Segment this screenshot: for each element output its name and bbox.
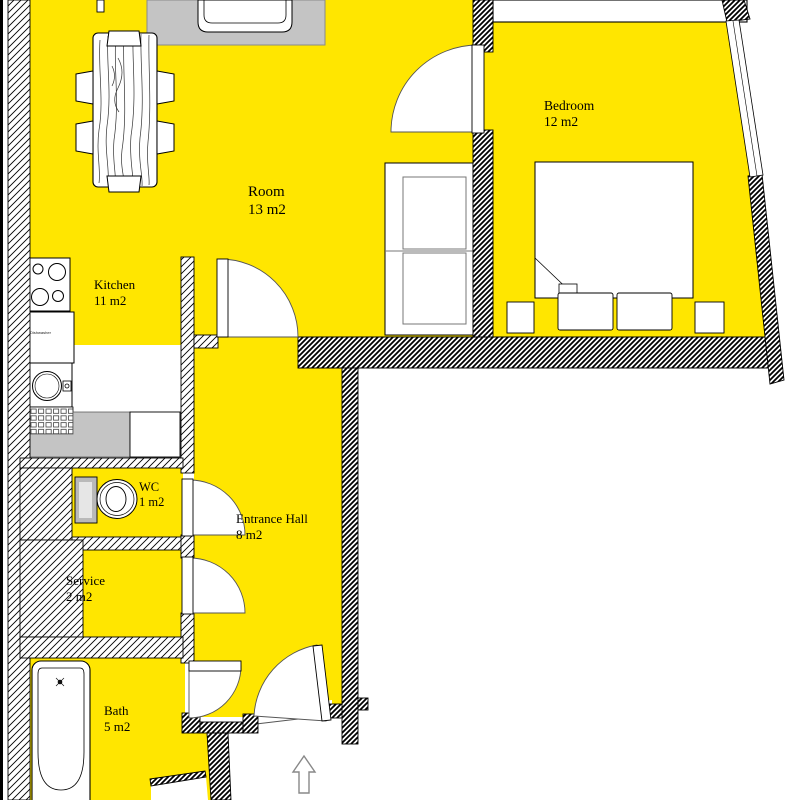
room-name: Bedroom xyxy=(544,98,594,114)
chair-icon xyxy=(107,31,141,46)
door-leaf xyxy=(189,661,241,671)
bathtub-icon xyxy=(32,661,90,800)
armchair-icon xyxy=(198,0,292,32)
cabinet xyxy=(130,412,180,457)
wall xyxy=(243,714,258,733)
wall xyxy=(298,337,782,368)
room-area: 12 m2 xyxy=(544,114,594,130)
bedroom-label: Bedroom 12 m2 xyxy=(544,98,594,131)
drainboard-icon xyxy=(28,407,73,434)
wall xyxy=(200,722,243,733)
entrance-hall-label: Entrance Hall 8 m2 xyxy=(236,511,308,543)
door-leaf xyxy=(217,259,228,337)
wall xyxy=(20,637,183,658)
room-area: 13 m2 xyxy=(248,201,286,219)
chair-icon xyxy=(157,121,174,154)
dishwasher-label: Dishwasher xyxy=(30,331,72,336)
wall xyxy=(473,130,493,337)
kitchen-label: Kitchen 11 m2 xyxy=(94,277,135,309)
room-area: 11 m2 xyxy=(94,293,135,309)
door-leaf xyxy=(472,45,484,133)
wall xyxy=(473,0,493,52)
wall xyxy=(342,368,358,744)
room-area: 5 m2 xyxy=(104,719,130,735)
floor-plan: Room 13 m2 Bedroom 12 m2 Kitchen 11 m2 W… xyxy=(0,0,800,800)
closet-icon xyxy=(493,0,747,22)
wall xyxy=(181,257,194,473)
pillow-icon xyxy=(617,293,672,330)
floor-plan-drawing xyxy=(0,0,800,800)
bath-label: Bath 5 m2 xyxy=(104,703,130,735)
room-area: 2 m2 xyxy=(66,589,105,605)
wall xyxy=(194,335,218,348)
dishwasher-icon xyxy=(28,312,74,363)
wall xyxy=(358,698,368,710)
wall xyxy=(20,458,183,468)
room-name: Kitchen xyxy=(94,277,135,293)
nightstand-icon xyxy=(695,302,724,333)
door-leaf xyxy=(182,479,193,536)
wall xyxy=(0,0,3,800)
nightstand-icon xyxy=(507,302,534,333)
door-leaf xyxy=(182,557,193,614)
wall-fragment xyxy=(97,0,104,12)
dishwasher-text: Dishwasher xyxy=(30,331,72,336)
pillow-icon xyxy=(558,293,613,330)
chair-icon xyxy=(107,176,141,192)
wc-label: WC 1 m2 xyxy=(139,480,164,511)
wardrobe-icon xyxy=(385,163,473,335)
service-label: Service 2 m2 xyxy=(66,573,105,605)
wall xyxy=(8,0,30,800)
chair-icon xyxy=(76,71,93,104)
room-name: Room xyxy=(248,183,286,201)
room-label: Room 13 m2 xyxy=(248,183,286,220)
faucet-icon xyxy=(63,381,71,391)
wall xyxy=(181,535,194,558)
room-name: Service xyxy=(66,573,105,589)
room-area: 8 m2 xyxy=(236,527,308,543)
dining-table-icon xyxy=(93,33,157,187)
room-name: Entrance Hall xyxy=(236,511,308,527)
chair-icon xyxy=(157,71,174,104)
wall xyxy=(207,733,231,800)
room-area: 1 m2 xyxy=(139,495,164,510)
wall xyxy=(72,537,183,550)
room-name: Bath xyxy=(104,703,130,719)
wall xyxy=(20,468,72,540)
chair-icon xyxy=(76,121,93,154)
room-name: WC xyxy=(139,480,164,495)
